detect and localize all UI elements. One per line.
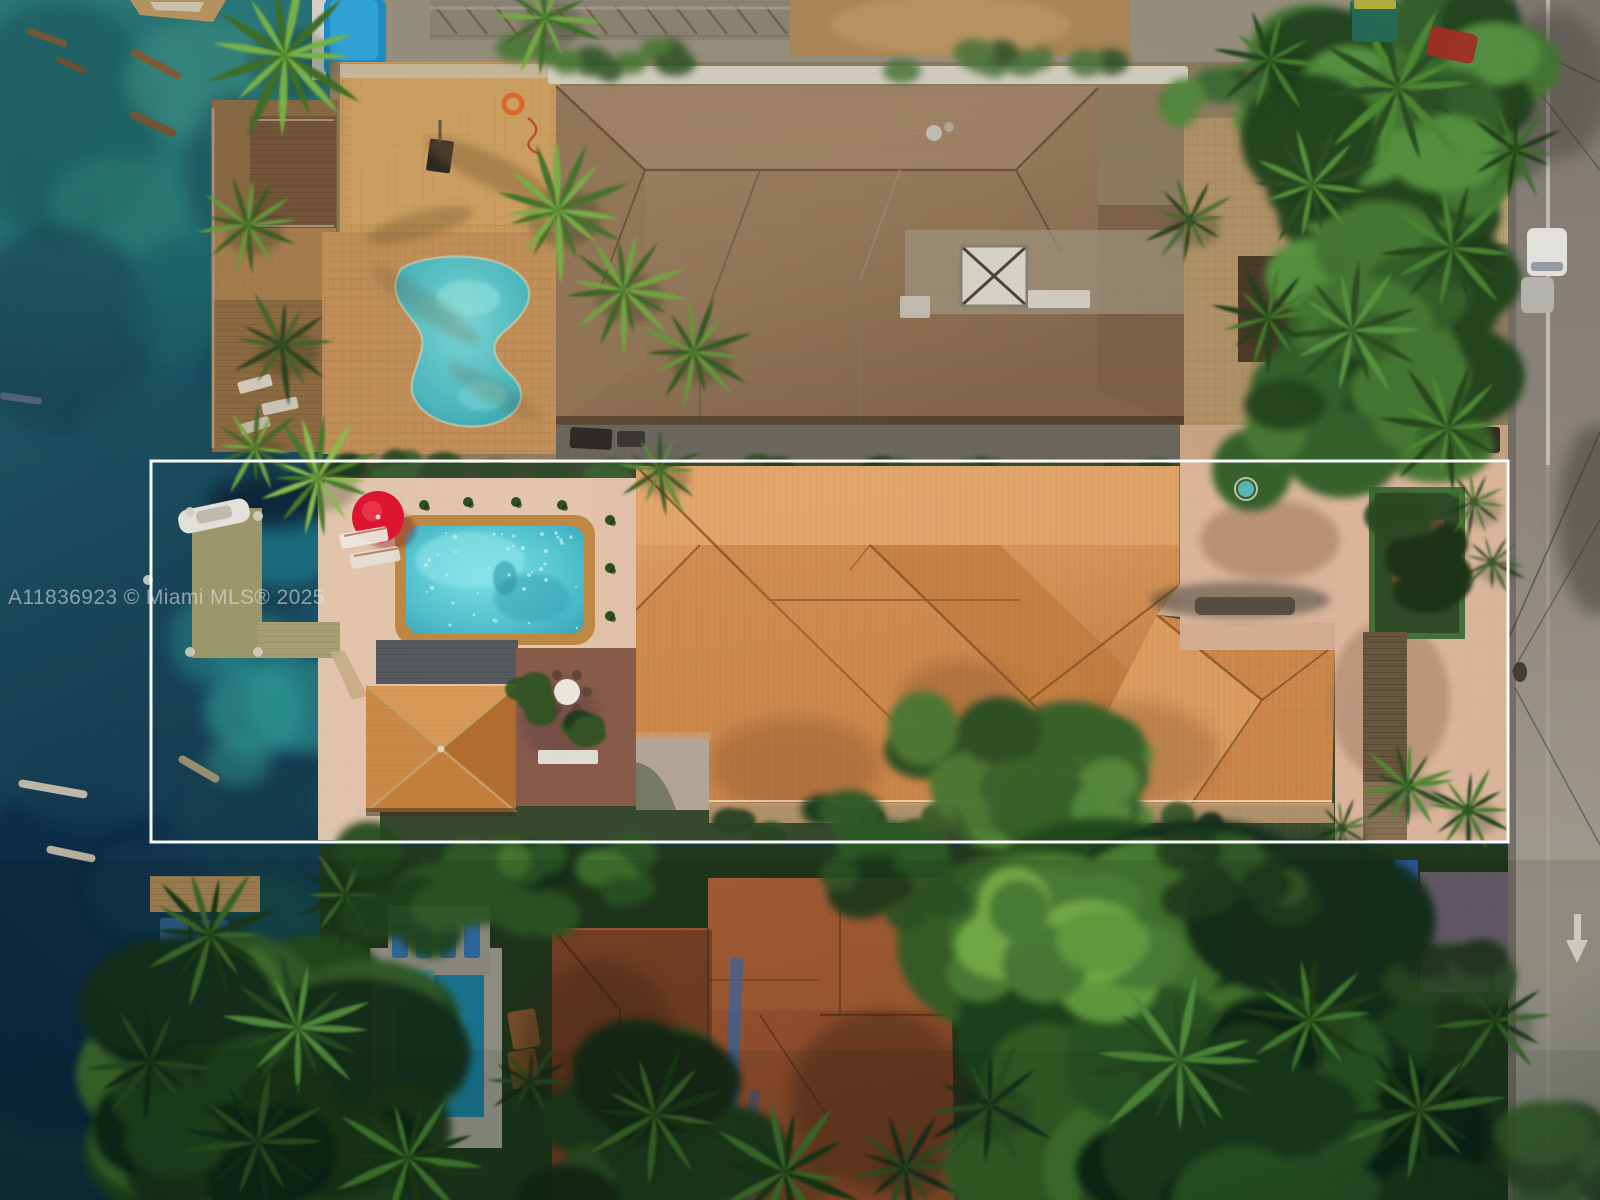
svg-text:A11836923 © Miami MLS® 2025: A11836923 © Miami MLS® 2025 [8,586,325,609]
